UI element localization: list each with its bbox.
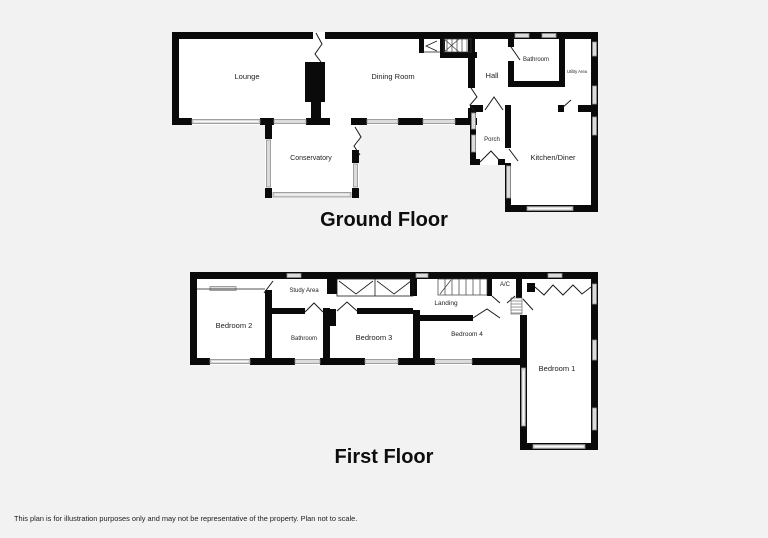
label-hall: Hall [486,71,499,80]
label-dining-room: Dining Room [371,72,414,81]
first-floor-title: First Floor [335,446,434,468]
floorplan-page: Lounge Dining Room Hall Bathroom Utility… [0,0,768,538]
label-bedroom-2: Bedroom 2 [216,321,253,330]
label-bedroom-4: Bedroom 4 [451,331,483,338]
label-lounge: Lounge [234,72,259,81]
label-study-area: Study Area [289,288,319,294]
label-kitchen-diner: Kitchen/Diner [530,153,576,162]
label-bedroom-1: Bedroom 1 [539,364,576,373]
floorplan-svg: Lounge Dining Room Hall Bathroom Utility… [0,0,768,538]
label-landing: Landing [434,300,458,307]
disclaimer-text: This plan is for illustration purposes o… [14,514,357,523]
label-gf-bathroom: Bathroom [523,57,549,63]
label-ac: A/C [500,282,511,288]
label-conservatory: Conservatory [290,155,332,162]
ground-floor-title: Ground Floor [320,209,448,231]
label-bedroom-3: Bedroom 3 [356,333,393,342]
first-floor-plan: Bedroom 2 Study Area Bathroom Bedroom 3 … [190,272,598,468]
label-utility-area: Utility Area [567,69,588,74]
label-porch: Porch [484,137,500,143]
label-ff-bathroom: Bathroom [291,336,317,342]
ground-floor-plan: Lounge Dining Room Hall Bathroom Utility… [172,32,598,231]
